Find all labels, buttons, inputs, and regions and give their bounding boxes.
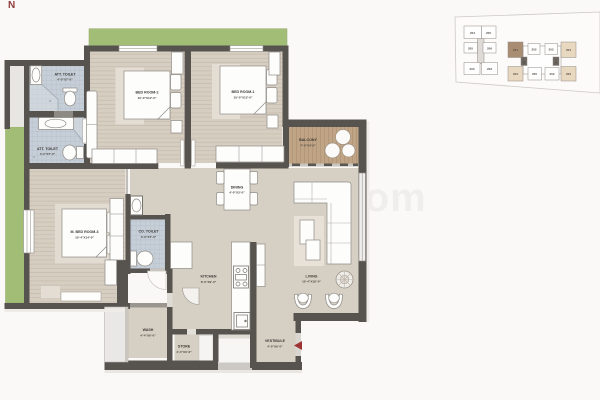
svg-text:4'-0"X7'-0": 4'-0"X7'-0" [40, 152, 56, 156]
svg-text:203: 203 [566, 72, 571, 76]
svg-text:7'-0"X4'-0": 7'-0"X4'-0" [300, 144, 316, 148]
svg-text:4'-0"X7'-0": 4'-0"X7'-0" [57, 77, 73, 81]
svg-text:202: 202 [531, 47, 536, 51]
svg-text:STORE: STORE [178, 345, 191, 349]
svg-text:203: 203 [487, 67, 492, 71]
svg-text:DINING: DINING [231, 186, 244, 190]
svg-text:4'-0"X3'-0": 4'-0"X3'-0" [229, 191, 245, 195]
svg-text:CO. TOILET: CO. TOILET [138, 230, 159, 234]
svg-text:201: 201 [513, 48, 518, 52]
svg-text:BALCONY: BALCONY [299, 138, 317, 142]
svg-text:206: 206 [487, 46, 492, 50]
svg-text:10'-4"X14'-0": 10'-4"X14'-0" [75, 236, 94, 240]
svg-text:VESTIBULE: VESTIBULE [265, 339, 286, 343]
svg-text:204: 204 [470, 31, 475, 35]
svg-text:ATT. TOILET: ATT. TOILET [54, 73, 76, 77]
svg-text:205: 205 [532, 72, 537, 76]
svg-text:8'-0"X9'-0": 8'-0"X9'-0" [201, 280, 217, 284]
svg-text:KITCHEN: KITCHEN [201, 275, 217, 279]
svg-text:4'-0"X7'-0": 4'-0"X7'-0" [141, 235, 157, 239]
svg-text:ATT. TOILET: ATT. TOILET [37, 147, 59, 151]
svg-text:205: 205 [468, 46, 473, 50]
svg-text:WASH: WASH [143, 328, 154, 332]
svg-text:10'-0"X12'-0": 10'-0"X12'-0" [138, 96, 157, 100]
svg-text:10'-0"X12'-0": 10'-0"X12'-0" [234, 96, 253, 100]
svg-text:BED ROOM-1: BED ROOM-1 [232, 90, 255, 94]
svg-text:LIVING: LIVING [306, 275, 318, 279]
svg-text:200: 200 [469, 67, 474, 71]
svg-text:202: 202 [549, 72, 554, 76]
svg-text:205: 205 [486, 31, 491, 35]
svg-text:204: 204 [513, 72, 518, 76]
svg-text:204: 204 [566, 48, 571, 52]
svg-text:BED ROOM-2: BED ROOM-2 [136, 91, 159, 95]
svg-text:10'-4"X18'-0": 10'-4"X18'-0" [302, 280, 321, 284]
svg-text:4'-4"X3'-6": 4'-4"X3'-6" [176, 350, 192, 354]
svg-text:4'-0"X6'-0": 4'-0"X6'-0" [267, 345, 283, 349]
svg-text:203: 203 [548, 47, 553, 51]
svg-text:M. BED ROOM-3: M. BED ROOM-3 [71, 230, 99, 234]
svg-text:4'-4"X6'-0": 4'-4"X6'-0" [140, 333, 156, 337]
svg-text:N: N [8, 0, 15, 11]
